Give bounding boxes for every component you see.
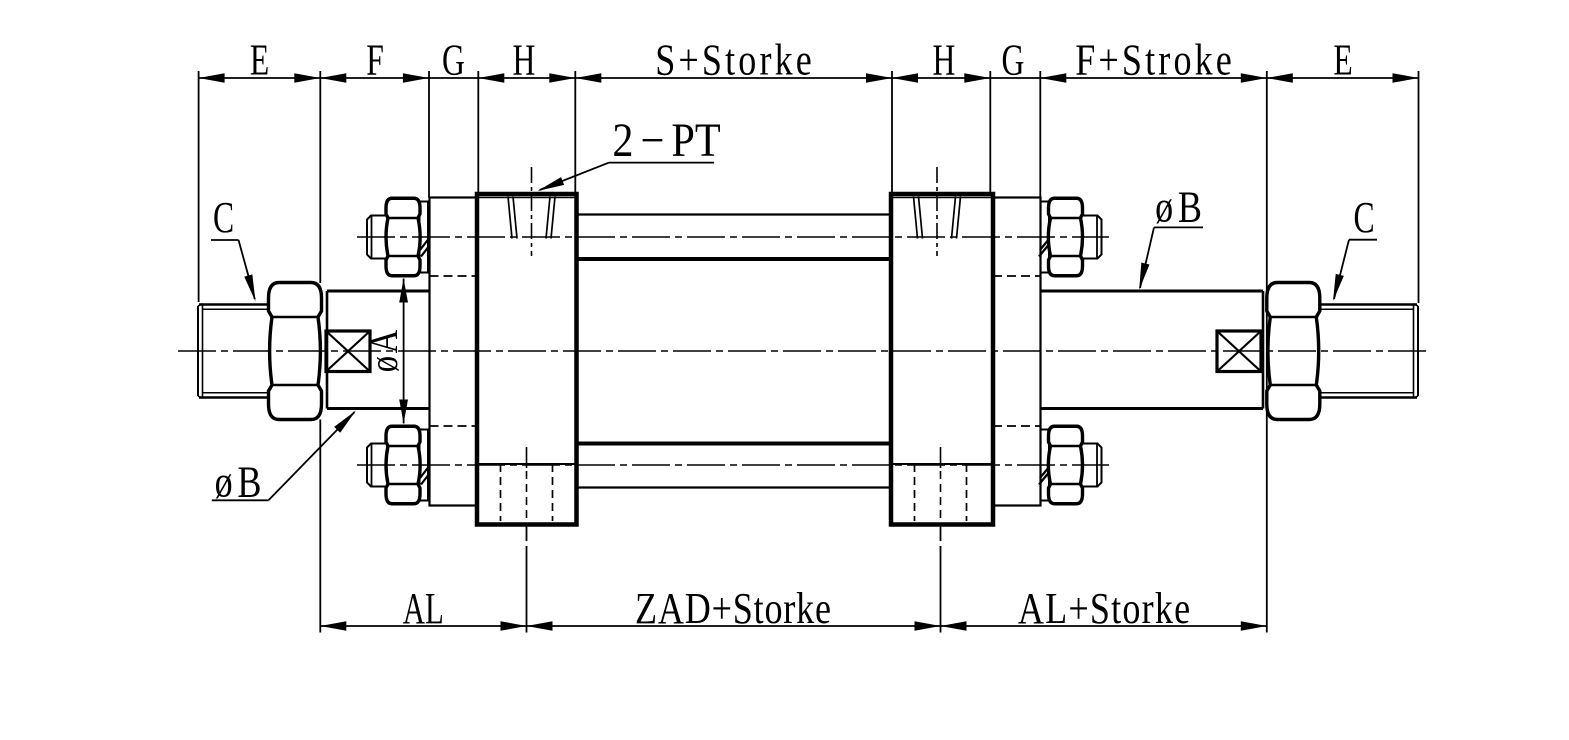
svg-text:G: G: [1002, 37, 1025, 85]
svg-text:C: C: [1353, 194, 1374, 242]
svg-text:F: F: [366, 37, 384, 85]
svg-text:E: E: [250, 37, 269, 85]
svg-text:AL: AL: [403, 585, 444, 634]
svg-text:E: E: [1333, 37, 1352, 85]
svg-text:øA: øA: [361, 329, 406, 372]
svg-text:G: G: [442, 37, 465, 85]
svg-text:C: C: [213, 194, 234, 242]
svg-text:H: H: [513, 37, 536, 85]
svg-text:S+Storke: S+Storke: [655, 35, 812, 84]
svg-text:2−PT: 2−PT: [612, 114, 720, 167]
svg-text:øB: øB: [1155, 182, 1202, 231]
svg-text:F+Stroke: F+Stroke: [1075, 35, 1232, 84]
svg-text:ZAD+Storke: ZAD+Storke: [635, 584, 831, 633]
svg-text:H: H: [933, 37, 956, 85]
svg-text:øB: øB: [215, 457, 262, 506]
svg-text:AL+Storke: AL+Storke: [1018, 584, 1190, 633]
